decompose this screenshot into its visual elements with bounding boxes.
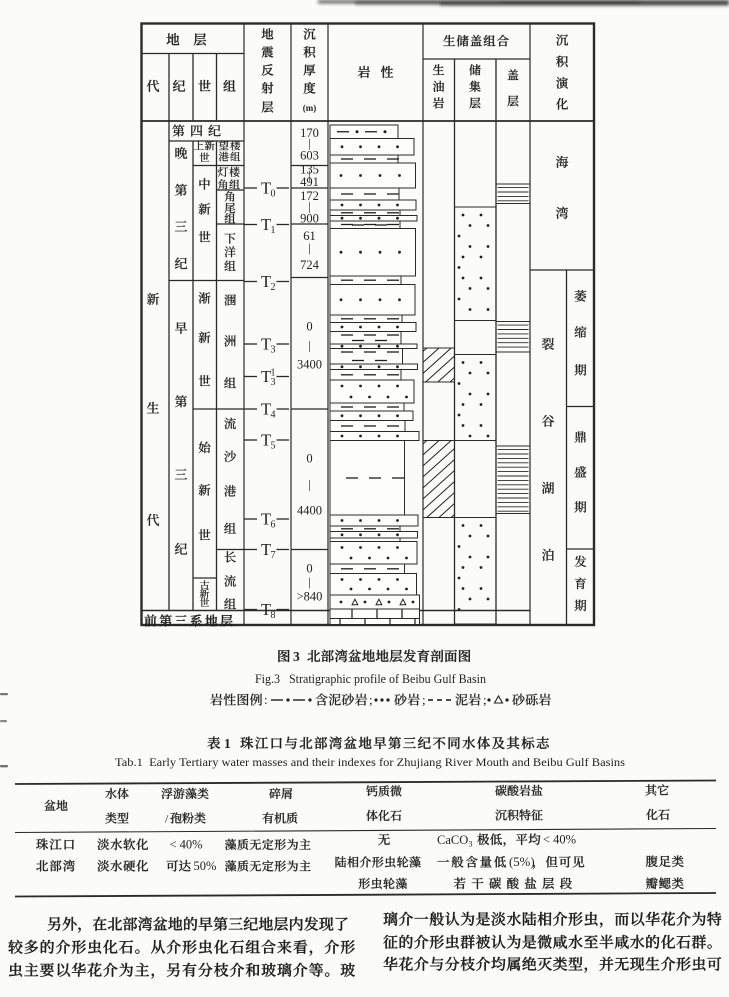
svg-text:6: 6	[271, 520, 276, 531]
svg-text:0: 0	[271, 189, 276, 200]
svg-text:4: 4	[271, 410, 276, 421]
svg-text:5: 5	[271, 441, 276, 452]
svg-text:;: ;	[483, 692, 487, 707]
svg-text:0: 0	[306, 451, 312, 465]
svg-text:1: 1	[271, 225, 276, 236]
svg-text:3: 3	[293, 649, 300, 664]
svg-text:>840: >840	[297, 589, 323, 603]
svg-text:0: 0	[306, 319, 312, 333]
svg-text:CaCO: CaCO	[437, 833, 468, 847]
svg-text:;: ;	[369, 692, 373, 707]
svg-text:Fig.3 Stratigraphic profile: Fig.3 Stratigraphic profile of Beibu Gul…	[255, 671, 486, 686]
svg-text::: :	[264, 692, 268, 707]
svg-text:3400: 3400	[297, 357, 322, 371]
svg-text:724: 724	[300, 258, 320, 272]
svg-text:0: 0	[306, 561, 312, 575]
svg-text:/: /	[165, 812, 169, 826]
svg-text:|: |	[308, 477, 311, 491]
svg-text:50%: 50%	[194, 859, 217, 873]
svg-text:2: 2	[271, 282, 276, 293]
svg-text:8: 8	[271, 610, 276, 621]
svg-text:3: 3	[271, 345, 276, 356]
svg-text:3: 3	[271, 377, 276, 388]
svg-text:3: 3	[469, 840, 473, 849]
svg-text:|: |	[308, 241, 311, 255]
svg-text:491: 491	[300, 175, 319, 189]
svg-text:(5%): (5%)	[509, 855, 535, 869]
svg-text:603: 603	[300, 148, 319, 162]
svg-text:;: ;	[422, 692, 426, 707]
svg-text:1: 1	[271, 368, 276, 379]
svg-text:(m): (m)	[303, 103, 317, 113]
svg-text:|: |	[308, 575, 311, 589]
svg-text:7: 7	[271, 550, 276, 561]
svg-text:|: |	[308, 338, 311, 352]
svg-text:Tab.1 Early Tertiary water ma: Tab.1 Early Tertiary water masses and th…	[115, 755, 625, 769]
svg-text:1: 1	[224, 736, 231, 751]
svg-text:900: 900	[300, 211, 319, 225]
svg-text:< 40%: < 40%	[169, 838, 202, 852]
svg-text:< 40%: < 40%	[543, 833, 576, 847]
svg-text:4400: 4400	[297, 503, 322, 517]
